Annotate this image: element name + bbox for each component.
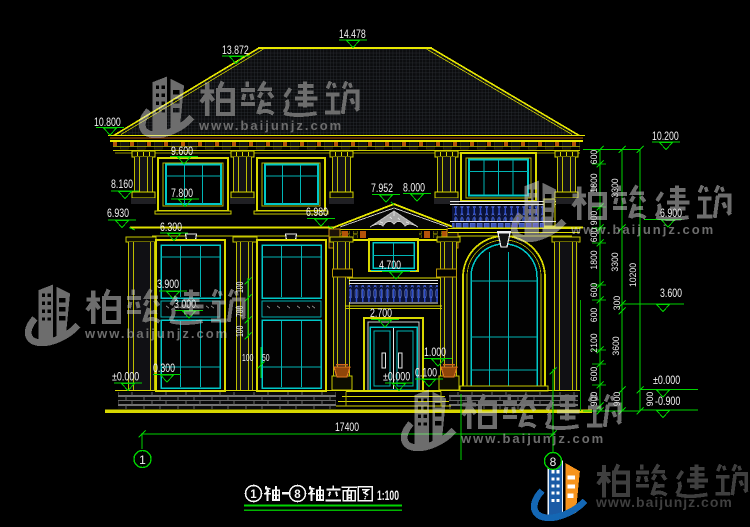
svg-text:±0.000: ±0.000 [112,372,139,384]
svg-text:6.980: 6.980 [306,207,328,219]
svg-text:3.600: 3.600 [660,288,682,300]
svg-text:8.160: 8.160 [111,179,133,191]
svg-text:8: 8 [550,455,557,469]
svg-text:0.100: 0.100 [415,368,437,380]
svg-text:17400: 17400 [335,422,359,434]
svg-text:www.baijunjz.com: www.baijunjz.com [595,494,733,510]
svg-text:1800: 1800 [589,250,600,269]
svg-text:13.872: 13.872 [222,45,249,57]
svg-text:7.952: 7.952 [371,183,393,195]
svg-text:2.700: 2.700 [370,308,392,320]
svg-text:±0.000: ±0.000 [383,372,410,384]
svg-text:8.000: 8.000 [403,183,425,195]
svg-text:2100: 2100 [589,333,600,352]
svg-text:14.478: 14.478 [339,29,366,41]
svg-text:10200: 10200 [628,263,639,287]
svg-text:900: 900 [645,392,656,406]
svg-text:0.300: 0.300 [153,363,175,375]
svg-text:1.000: 1.000 [424,347,446,359]
svg-text:4.700: 4.700 [379,260,401,272]
svg-text:1: 1 [250,489,257,501]
svg-text:7.800: 7.800 [171,188,193,200]
svg-text:10.200: 10.200 [652,131,679,143]
svg-text:3300: 3300 [610,252,621,271]
svg-text:3.900: 3.900 [157,279,179,291]
svg-text:600: 600 [589,367,600,381]
svg-text:600: 600 [589,150,600,164]
svg-text:1: 1 [139,453,146,467]
svg-text:600: 600 [589,283,600,297]
svg-text:3600: 3600 [611,336,622,355]
svg-text:6.930: 6.930 [107,208,129,220]
svg-text:-0.900: -0.900 [655,396,680,408]
svg-text:100: 100 [242,352,253,364]
svg-text:600: 600 [589,308,600,322]
svg-text:1:100: 1:100 [377,488,399,503]
svg-text:300: 300 [612,296,623,310]
svg-text:±0.000: ±0.000 [653,375,680,387]
svg-text:100: 100 [235,325,246,337]
svg-text:6.300: 6.300 [160,222,182,234]
svg-text:8: 8 [294,489,301,501]
